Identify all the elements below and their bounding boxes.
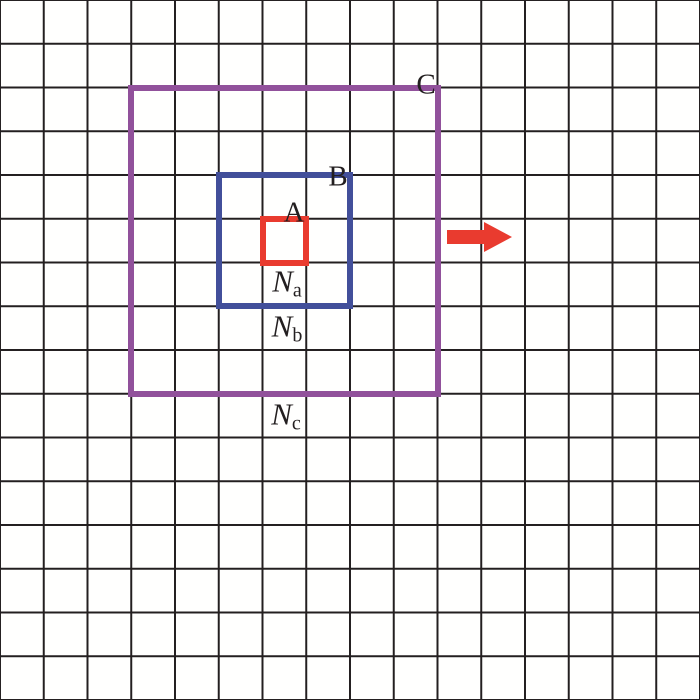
n-label-base: N <box>272 264 293 299</box>
neighbor-count-label-c: Nc <box>271 399 301 430</box>
n-label-subscript: b <box>292 325 302 347</box>
n-label-base: N <box>272 309 293 344</box>
square-b-label: B <box>328 163 347 192</box>
neighbor-count-label-b: Nb <box>272 311 303 342</box>
square-c-label: C <box>416 71 435 100</box>
n-label-subscript: c <box>292 413 301 435</box>
neighbor-count-label-a: Na <box>272 266 302 297</box>
n-label-base: N <box>271 397 292 432</box>
n-label-subscript: a <box>293 280 302 302</box>
square-a-label: A <box>284 199 305 228</box>
right-arrow-icon <box>447 222 512 252</box>
neighborhood-grid-figure: A B C Na Nb Nc <box>0 0 700 700</box>
